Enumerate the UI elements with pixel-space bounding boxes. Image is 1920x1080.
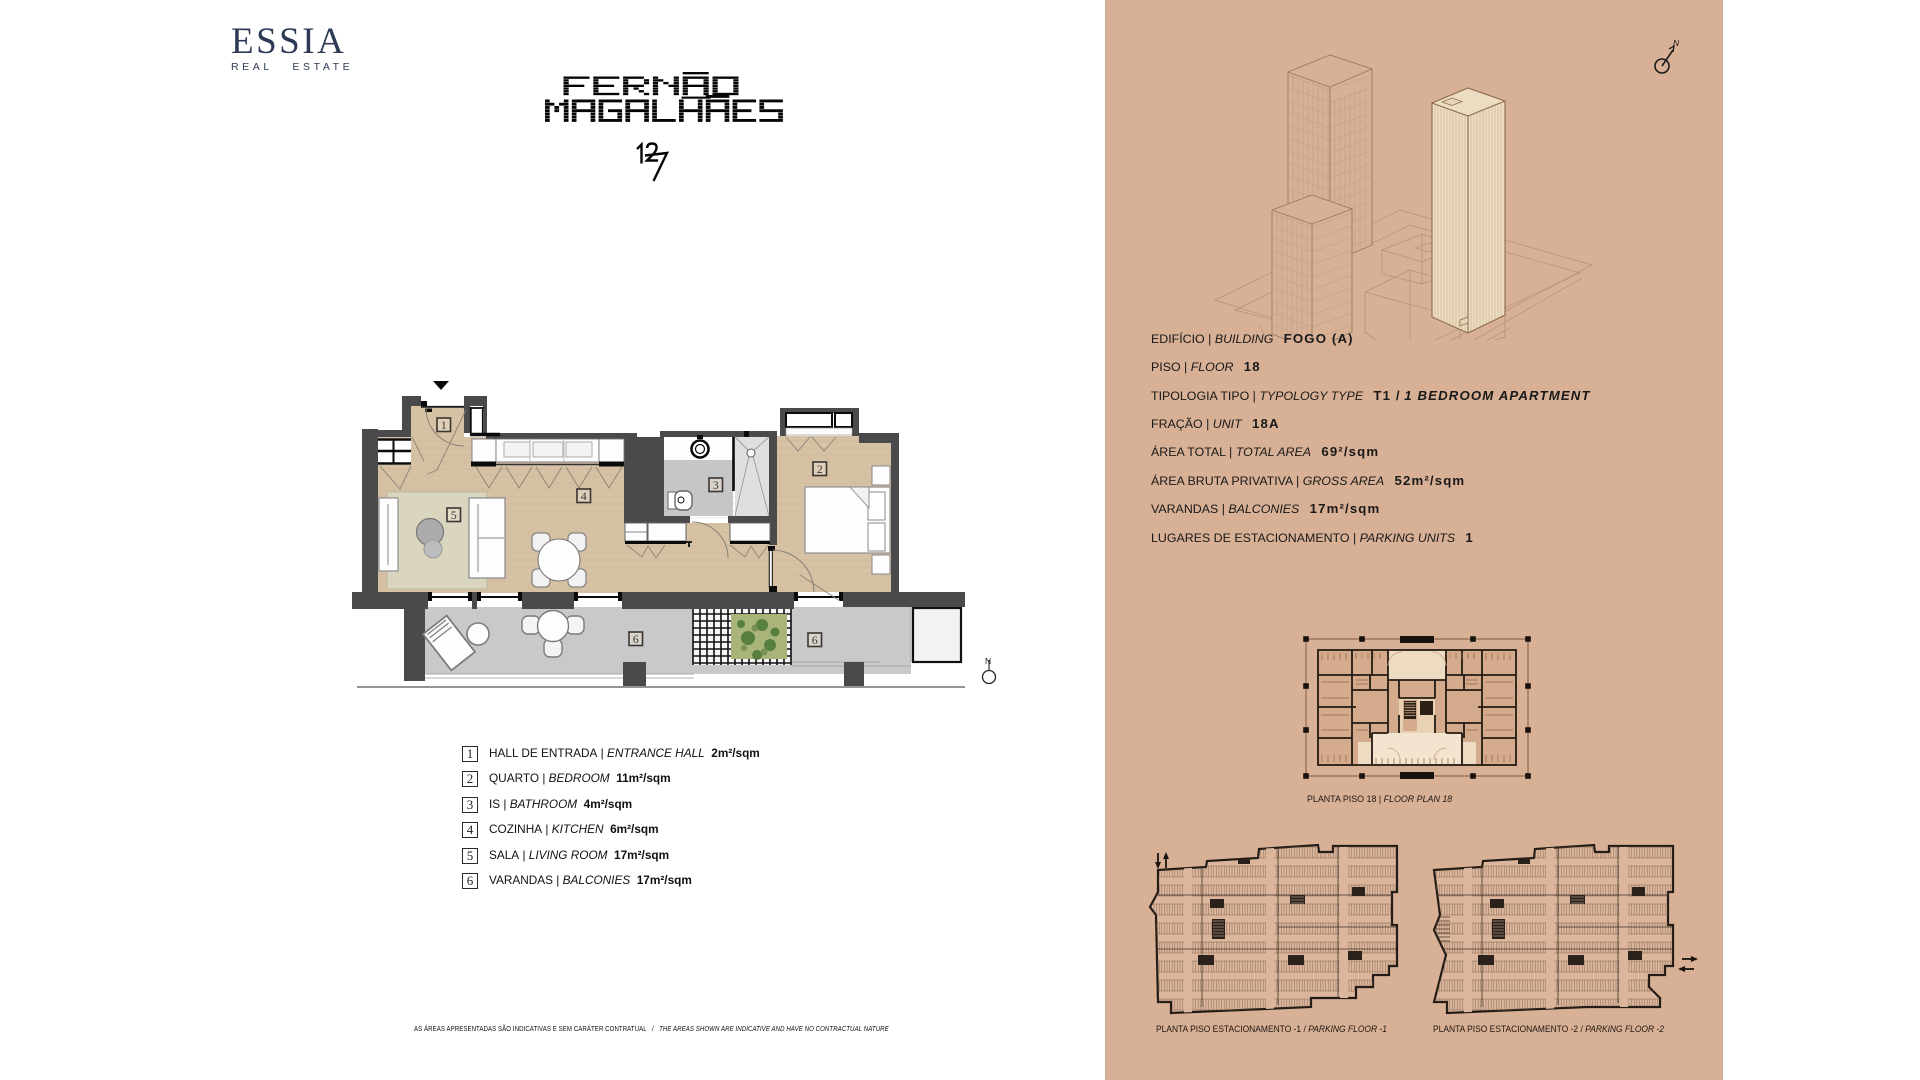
- svg-text:N: N: [985, 656, 991, 666]
- svg-text:1: 1: [441, 418, 447, 432]
- svg-text:6: 6: [633, 632, 639, 646]
- svg-text:2: 2: [817, 462, 823, 476]
- svg-text:3: 3: [713, 478, 719, 492]
- svg-text:6: 6: [812, 633, 818, 647]
- svg-text:N: N: [1673, 38, 1680, 48]
- svg-text:5: 5: [451, 508, 457, 522]
- svg-text:4: 4: [581, 489, 587, 503]
